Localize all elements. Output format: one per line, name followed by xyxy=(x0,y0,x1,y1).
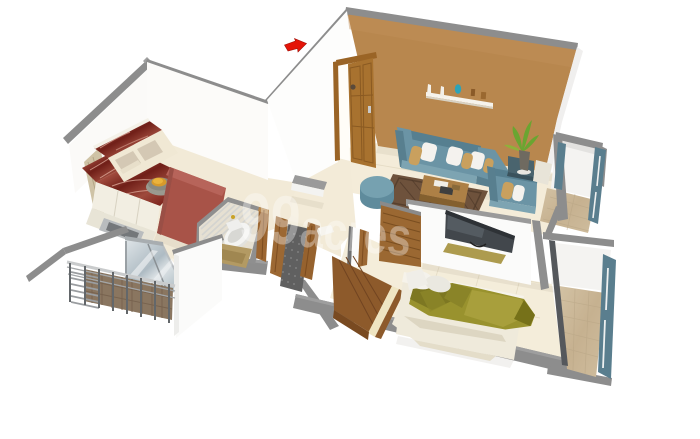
svg-text:acres: acres xyxy=(298,199,414,268)
svg-text:99: 99 xyxy=(237,179,304,261)
